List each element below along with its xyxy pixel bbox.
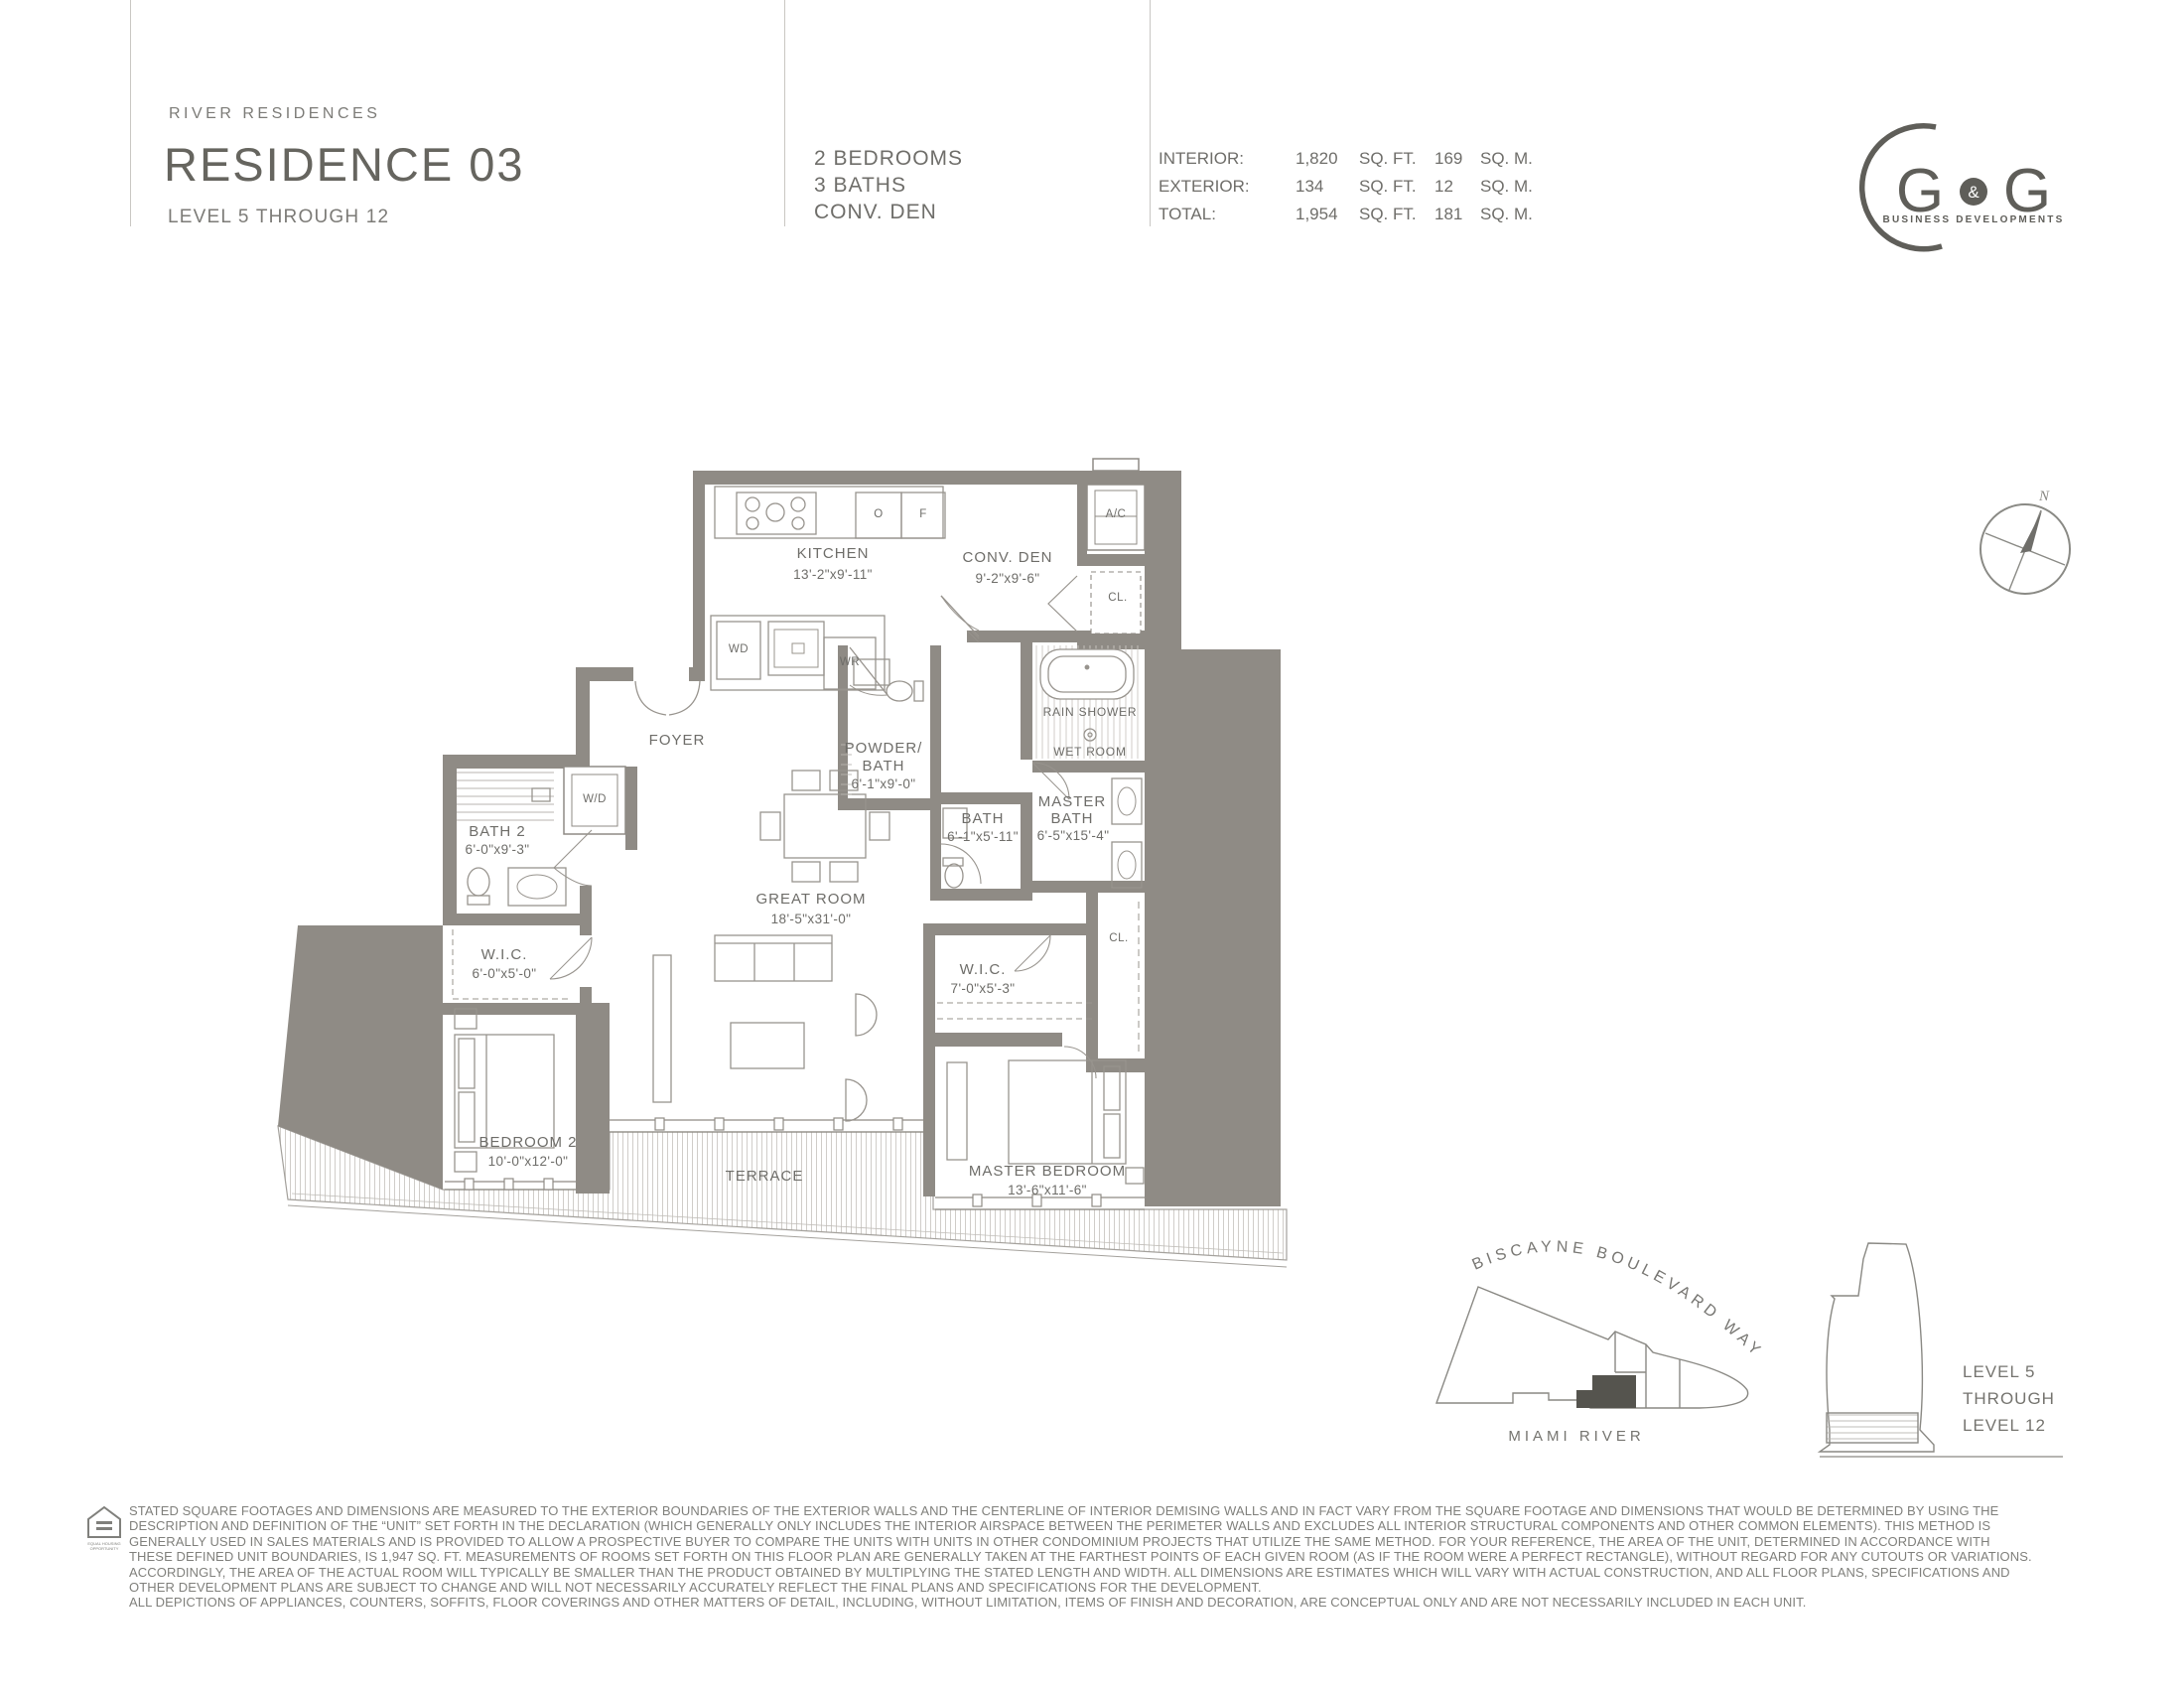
stats-sqft-unit: SQ. FT. — [1359, 149, 1434, 169]
closet-label-ac: A/C — [1071, 508, 1160, 520]
svg-text:BISCAYNE BOULEVARD WAY: BISCAYNE BOULEVARD WAY — [1470, 1238, 1767, 1361]
svg-text:OPPORTUNITY: OPPORTUNITY — [90, 1546, 119, 1551]
stats-label: TOTAL: — [1159, 205, 1296, 224]
program-den: CONV. DEN — [814, 199, 963, 225]
header-divider-3 — [1150, 0, 1151, 226]
header-divider-1 — [130, 0, 131, 226]
stats-sqm-unit: SQ. M. — [1480, 205, 1533, 224]
appliance-label-wd: WD — [694, 643, 783, 655]
stats-sqm-value: 169 — [1434, 149, 1480, 169]
building-key-label: LEVEL 5 THROUGH LEVEL 12 — [1963, 1358, 2055, 1439]
header-divider-2 — [784, 0, 785, 226]
page-title: RESIDENCE 03 — [164, 137, 525, 192]
stats-sqm-value: 12 — [1434, 177, 1480, 197]
equal-housing-icon: EQUAL HOUSING OPPORTUNITY — [87, 1507, 120, 1551]
feature-label-rain-shower: RAIN SHOWER — [1021, 705, 1160, 719]
closet-label-cl-mid: CL. — [1074, 932, 1163, 944]
stats-row-interior: INTERIOR: 1,820 SQ. FT. 169 SQ. M. — [1159, 145, 1533, 173]
compass-north-label: N — [2039, 489, 2049, 505]
room-label-powder-2: BATH — [764, 758, 1003, 774]
floorplan-sheet: { "header": { "brand": "RIVER RESIDENCES… — [0, 0, 2184, 1688]
room-dims-conv-den: 9'-2"x9'-6" — [888, 571, 1127, 586]
room-label-bath2: BATH 2 — [378, 823, 616, 840]
program-baths: 3 BATHS — [814, 172, 963, 199]
logo-tagline: BUSINESS DEVELOPMENTS — [1854, 214, 2093, 225]
room-dims-master-bath: 6'-5"x15'-4" — [954, 828, 1192, 843]
room-label-foyer: FOYER — [558, 732, 796, 749]
street-label: BISCAYNE BOULEVARD WAY — [1470, 1238, 1767, 1361]
disclaimer-line: GENERALLY USED IN SALES MATERIALS AND IS… — [129, 1534, 2124, 1549]
room-dims-wic-master: 7'-0"x5'-3" — [864, 981, 1102, 996]
closet-label-cl-top: CL. — [1073, 592, 1162, 604]
room-dims-bath2: 6'-0"x9'-3" — [378, 842, 616, 857]
room-dims-bedroom2: 10'-0"x12'-0" — [409, 1154, 647, 1169]
room-label-conv-den: CONV. DEN — [888, 549, 1127, 566]
disclaimer-line: STATED SQUARE FOOTAGES AND DIMENSIONS AR… — [129, 1503, 2124, 1518]
room-dims-great-room: 18'-5"x31'-0" — [692, 912, 930, 926]
room-dims-powder: 6'-1"x9'-0" — [764, 776, 1003, 791]
brand-title: RIVER RESIDENCES — [169, 105, 380, 123]
room-label-wet-room: WET ROOM — [1021, 745, 1160, 759]
room-dims-wic2: 6'-0"x5'-0" — [385, 966, 623, 981]
building-key-line: LEVEL 12 — [1963, 1412, 2055, 1439]
stats-row-total: TOTAL: 1,954 SQ. FT. 181 SQ. M. — [1159, 201, 1533, 228]
stats-sqm-unit: SQ. M. — [1480, 177, 1533, 197]
logo-ampersand: & — [1968, 183, 1979, 202]
disclaimer-line: DESCRIPTION AND DEFINITION OF THE “UNIT”… — [129, 1518, 2124, 1533]
program-summary: 2 BEDROOMS 3 BATHS CONV. DEN — [814, 145, 963, 225]
stats-sqm-unit: SQ. M. — [1480, 149, 1533, 169]
area-stats-table: INTERIOR: 1,820 SQ. FT. 169 SQ. M. EXTER… — [1159, 145, 1533, 228]
disclaimer-line: ACCORDINGLY, THE AREA OF THE ACTUAL ROOM… — [129, 1565, 2124, 1580]
building-key-line: LEVEL 5 — [1963, 1358, 2055, 1385]
sheet-drawing: BISCAYNE BOULEVARD WAY G & G EQUAL HOUSI… — [0, 0, 2184, 1688]
disclaimer-text: STATED SQUARE FOOTAGES AND DIMENSIONS AR… — [129, 1503, 2124, 1611]
compass-icon — [1980, 504, 2070, 594]
room-label-master-bedroom: MASTER BEDROOM — [928, 1163, 1166, 1180]
gg-logo: G & G — [1854, 126, 2083, 249]
program-bedrooms: 2 BEDROOMS — [814, 145, 963, 172]
disclaimer-line: OTHER DEVELOPMENT PLANS ARE SUBJECT TO C… — [129, 1580, 2124, 1595]
stats-sqm-value: 181 — [1434, 205, 1480, 224]
stats-label: INTERIOR: — [1159, 149, 1296, 169]
room-label-terrace: TERRACE — [645, 1168, 884, 1185]
room-label-great-room: GREAT ROOM — [692, 891, 930, 908]
stats-row-exterior: EXTERIOR: 134 SQ. FT. 12 SQ. M. — [1159, 173, 1533, 201]
appliance-label-fridge: F — [879, 508, 968, 520]
page-subtitle: LEVEL 5 THROUGH 12 — [168, 207, 389, 228]
site-map: BISCAYNE BOULEVARD WAY — [1436, 1238, 1766, 1408]
room-label-master-bath-2: BATH — [953, 810, 1191, 827]
stats-sqft-unit: SQ. FT. — [1359, 177, 1434, 197]
stats-label: EXTERIOR: — [1159, 177, 1296, 197]
appliance-label-wr: WR — [805, 656, 894, 668]
room-label-bedroom2: BEDROOM 2 — [409, 1134, 647, 1151]
room-label-powder-1: POWDER/ — [764, 740, 1003, 757]
stats-sqft-value: 1,954 — [1296, 205, 1359, 224]
river-label: MIAMI RIVER — [1457, 1428, 1696, 1445]
room-dims-master-bedroom: 13'-6"x11'-6" — [928, 1183, 1166, 1197]
stats-sqft-value: 134 — [1296, 177, 1359, 197]
room-label-wic2: W.I.C. — [385, 946, 623, 963]
stats-sqft-value: 1,820 — [1296, 149, 1359, 169]
disclaimer-line: THESE DEFINED UNIT BOUNDARIES, IS 1,947 … — [129, 1549, 2124, 1564]
stats-sqft-unit: SQ. FT. — [1359, 205, 1434, 224]
unit-location-marker — [1576, 1375, 1636, 1408]
building-key-line: THROUGH — [1963, 1385, 2055, 1412]
room-label-master-bath-1: MASTER — [953, 793, 1191, 810]
room-label-wic-master: W.I.C. — [864, 961, 1102, 978]
closet-label-wd: W/D — [550, 793, 639, 805]
disclaimer-line: ALL DEPICTIONS OF APPLIANCES, COUNTERS, … — [129, 1595, 2124, 1610]
